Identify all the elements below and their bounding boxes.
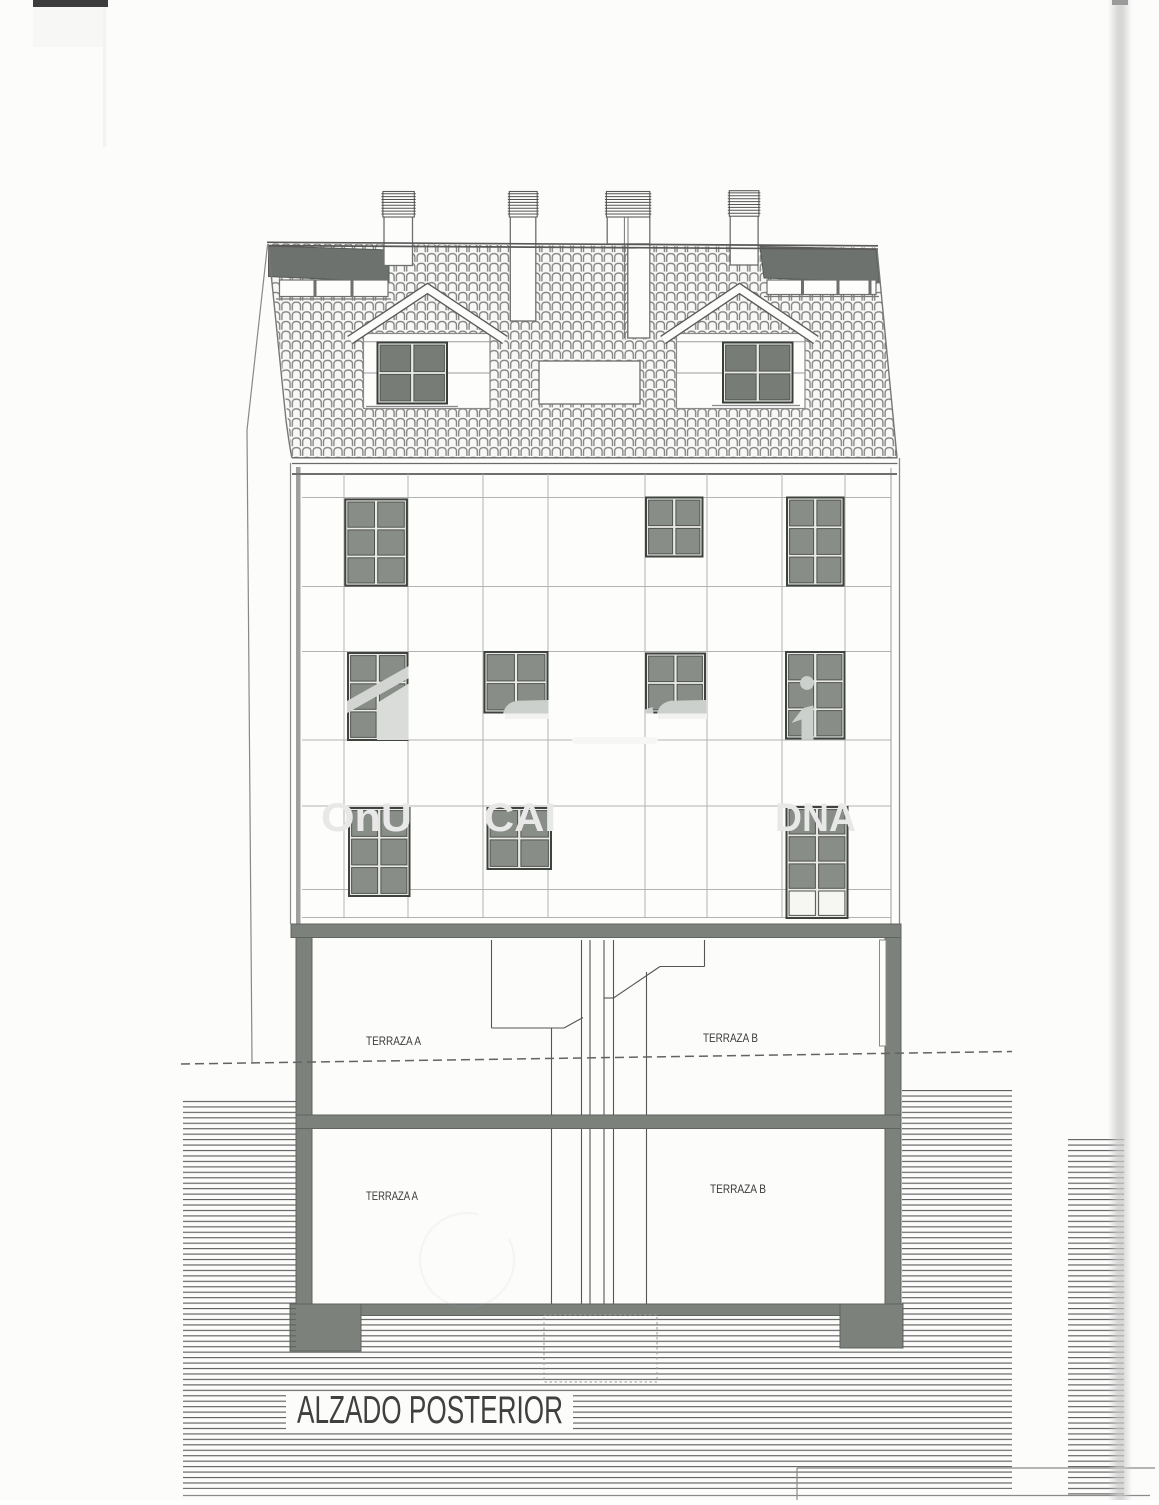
svg-text:CAI: CAI [484,796,556,840]
svg-text:ALZADO POSTERIOR: ALZADO POSTERIOR [297,1389,563,1432]
svg-text:TERRAZA B: TERRAZA B [703,1033,758,1045]
svg-text:OnU: OnU [321,796,412,840]
svg-text:DNA: DNA [775,796,856,840]
svg-text:TERRAZA A: TERRAZA A [366,1036,421,1048]
svg-text:TERRAZA A: TERRAZA A [366,1191,418,1203]
svg-text:TERRAZA B: TERRAZA B [710,1184,766,1196]
